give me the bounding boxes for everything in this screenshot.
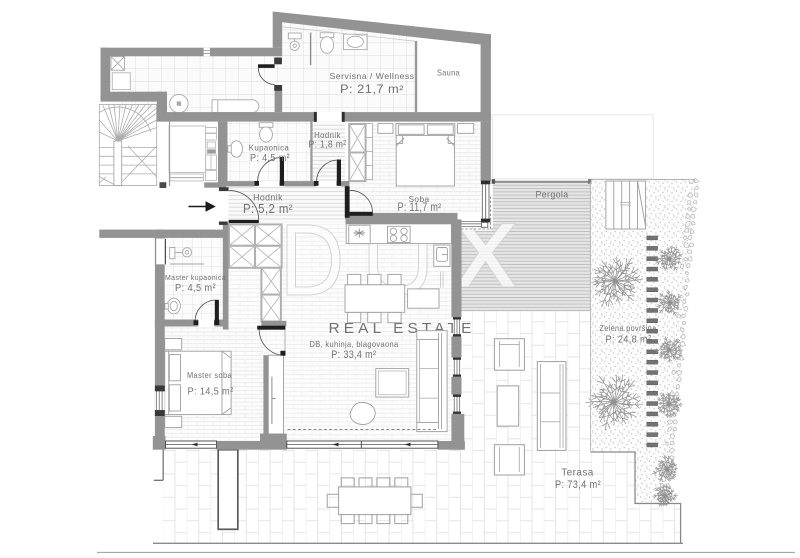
svg-text:Zelena površina: Zelena površina bbox=[600, 324, 657, 333]
svg-text:P: 14,5 m²: P: 14,5 m² bbox=[188, 386, 234, 398]
svg-text:P: 4,5 m²: P: 4,5 m² bbox=[175, 283, 216, 294]
svg-text:Terasa: Terasa bbox=[561, 468, 593, 479]
svg-text:P: 24,8 m²: P: 24,8 m² bbox=[606, 334, 652, 346]
svg-text:Master soba: Master soba bbox=[187, 371, 232, 380]
svg-text:P: 4,5 m²: P: 4,5 m² bbox=[250, 153, 290, 164]
svg-text:P: 1,8 m²: P: 1,8 m² bbox=[309, 140, 347, 151]
svg-text:P: 5,2 m²: P: 5,2 m² bbox=[243, 202, 293, 216]
svg-text:Sauna: Sauna bbox=[437, 68, 460, 78]
svg-text:DB, kuhinja, blagovaona: DB, kuhinja, blagovaona bbox=[310, 339, 399, 349]
svg-text:Kupaonica: Kupaonica bbox=[249, 144, 290, 153]
svg-text:Servisna / Wellness: Servisna / Wellness bbox=[330, 71, 415, 81]
svg-text:P: 11,7 m²: P: 11,7 m² bbox=[398, 202, 442, 214]
svg-text:P: 33,4 m²: P: 33,4 m² bbox=[331, 349, 376, 361]
svg-text:Master kupaonica: Master kupaonica bbox=[165, 273, 227, 282]
svg-text:Pergola: Pergola bbox=[535, 190, 568, 200]
svg-text:P: 21,7 m²: P: 21,7 m² bbox=[340, 84, 404, 96]
svg-text:P: 73,4 m²: P: 73,4 m² bbox=[555, 479, 601, 491]
